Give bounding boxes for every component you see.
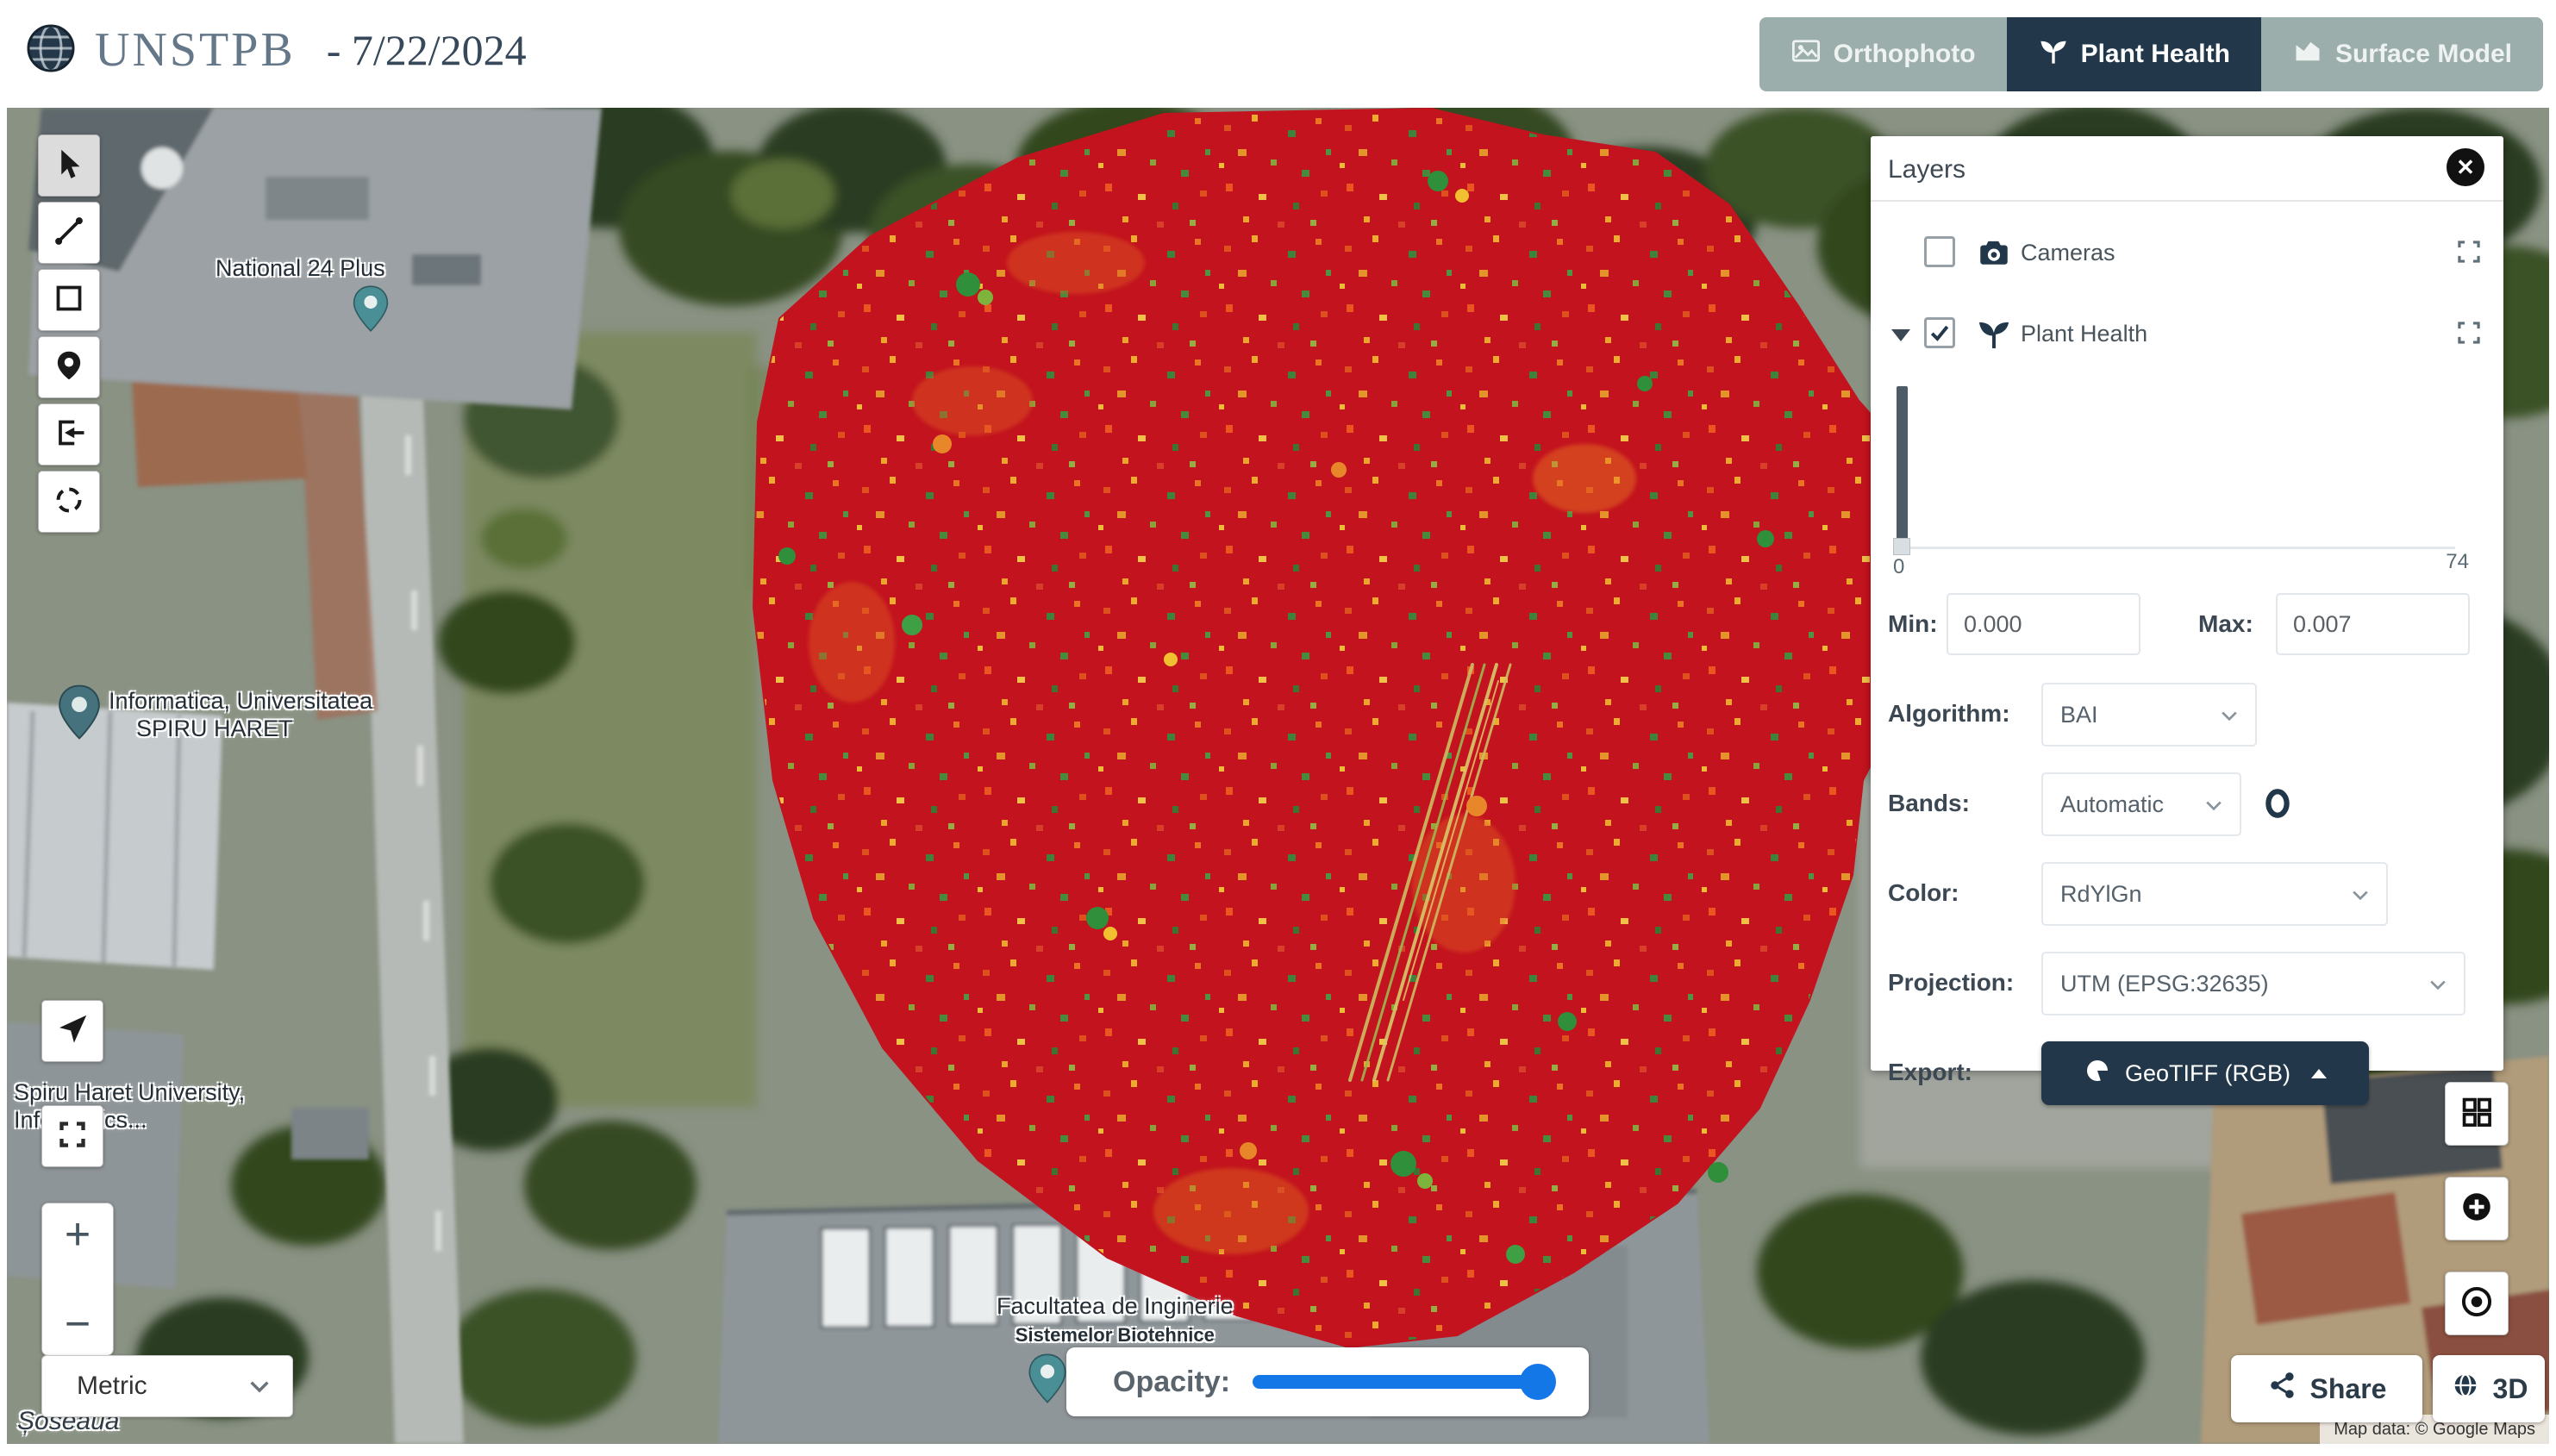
file-export-icon — [52, 416, 86, 454]
zoom-in-button[interactable]: + — [42, 1212, 113, 1257]
plant-health-icon — [2038, 35, 2069, 73]
export-measurements-button[interactable] — [38, 403, 100, 466]
max-label: Max: — [2198, 610, 2253, 638]
locate-me-button[interactable] — [41, 1000, 103, 1062]
projection-value: UTM (EPSG:32635) — [2060, 971, 2269, 997]
chevron-down-icon — [249, 1372, 270, 1401]
polygon-tool-icon — [52, 281, 86, 320]
layer-row-cameras: Cameras — [1871, 226, 2503, 283]
layer-name: Cameras — [2021, 240, 2115, 266]
marker-tool-icon — [52, 348, 86, 387]
layers-panel-header: Layers ✕ — [1871, 136, 2503, 200]
measure-line-tool-button[interactable] — [38, 202, 100, 264]
camera-icon — [1976, 234, 2012, 275]
layer-row-plant-health: Plant Health — [1871, 307, 2503, 364]
header: UNSTPB - 7/22/2024 Orthophoto Plant Heal… — [0, 0, 2556, 108]
divider — [1871, 200, 2503, 202]
location-arrow-icon — [55, 1012, 90, 1051]
algorithm-select[interactable]: BAI — [2041, 683, 2257, 747]
opacity-slider-thumb[interactable] — [1520, 1364, 1556, 1400]
map-pin-icon[interactable] — [352, 284, 390, 337]
layers-panel-title: Layers — [1888, 155, 1965, 184]
project-date: - 7/22/2024 — [327, 25, 527, 75]
bands-label: Bands: — [1888, 790, 1970, 817]
zoom-to-layer-icon[interactable] — [2455, 238, 2483, 270]
place-label-national: National 24 Plus — [216, 254, 385, 282]
image-icon — [1790, 35, 1822, 73]
place-label-facultatea: Facultatea de Inginerie Sistemelor Biote… — [997, 1292, 1234, 1348]
tab-label: Plant Health — [2081, 40, 2230, 69]
select-tool-button[interactable] — [38, 134, 100, 197]
tab-label: Orthophoto — [1834, 40, 1976, 69]
max-input[interactable] — [2276, 593, 2470, 655]
share-icon — [2267, 1370, 2298, 1408]
zoom-out-button[interactable]: − — [42, 1302, 113, 1347]
share-label: Share — [2310, 1373, 2387, 1405]
algorithm-row: Algorithm: BAI — [1871, 683, 2503, 747]
globe-3d-icon — [2450, 1370, 2481, 1408]
opacity-label: Opacity: — [1113, 1365, 1230, 1399]
fullscreen-icon — [55, 1117, 90, 1156]
add-overlay-button[interactable] — [2445, 1177, 2509, 1240]
map-pin-icon[interactable] — [57, 684, 102, 745]
caret-up-icon — [2311, 1069, 2327, 1078]
bands-select[interactable]: Automatic — [2041, 772, 2241, 836]
projection-select[interactable]: UTM (EPSG:32635) — [2041, 952, 2465, 1015]
map-pin-icon[interactable] — [1028, 1353, 1067, 1409]
view-tabbar: Orthophoto Plant Health Surface Model — [1759, 17, 2543, 91]
chevron-down-icon — [2221, 702, 2238, 728]
chevron-down-icon — [2429, 971, 2447, 997]
colormap-select[interactable]: RdYlGn — [2041, 862, 2388, 926]
color-row: Color: RdYlGn — [1871, 862, 2503, 926]
projection-row: Projection: UTM (EPSG:32635) — [1871, 952, 2503, 1015]
plant-health-checkbox[interactable] — [1924, 317, 1955, 348]
algorithm-label: Algorithm: — [1888, 700, 2010, 728]
focus-rings-icon — [2459, 1284, 2495, 1324]
focus-extent-button[interactable] — [2445, 1272, 2509, 1335]
tab-surface-model[interactable]: Surface Model — [2261, 17, 2543, 91]
opacity-slider[interactable] — [1253, 1375, 1549, 1389]
plant-health-icon — [1976, 316, 2012, 356]
min-input[interactable] — [1947, 593, 2140, 655]
cursor-icon — [52, 147, 86, 185]
chevron-down-icon — [2205, 791, 2222, 818]
bands-value: Automatic — [2060, 791, 2164, 818]
histogram-range-handle[interactable] — [1893, 538, 1910, 555]
zoom-to-layer-icon[interactable] — [2455, 319, 2483, 351]
place-label-informatica: Informatica, Universitatea SPIRU HARET — [109, 687, 372, 743]
webodm-app: UNSTPB - 7/22/2024 Orthophoto Plant Heal… — [0, 0, 2556, 1456]
fullscreen-button[interactable] — [41, 1105, 103, 1167]
globe-icon — [26, 23, 76, 78]
chevron-down-icon — [2352, 881, 2369, 908]
export-row: Export: GeoTIFF (RGB) — [1871, 1041, 2503, 1105]
info-icon[interactable] — [2260, 786, 2295, 825]
minmax-row: Min: Max: — [1871, 593, 2503, 657]
histogram-max-label: 74 — [2446, 550, 2469, 574]
globe-export-icon — [2084, 1057, 2111, 1090]
project-title: UNSTPB — [95, 22, 296, 78]
cameras-checkbox[interactable] — [1924, 236, 1955, 267]
export-label: Export: — [1888, 1059, 1972, 1086]
histogram-range-track — [1897, 547, 2455, 549]
layers-panel: Layers ✕ Cameras Plant Health — [1871, 136, 2503, 1071]
export-button-label: GeoTIFF (RGB) — [2125, 1060, 2290, 1087]
layer-name: Plant Health — [2021, 321, 2147, 347]
tab-orthophoto[interactable]: Orthophoto — [1759, 17, 2007, 91]
export-geotiff-button[interactable]: GeoTIFF (RGB) — [2041, 1041, 2369, 1105]
brand: UNSTPB - 7/22/2024 — [26, 22, 527, 78]
crosshair-tool-button[interactable] — [38, 471, 100, 533]
collapse-caret-icon[interactable] — [1891, 329, 1910, 341]
min-label: Min: — [1888, 610, 1938, 638]
view-3d-button[interactable]: 3D — [2433, 1355, 2545, 1422]
tab-plant-health[interactable]: Plant Health — [2007, 17, 2261, 91]
line-tool-icon — [52, 214, 86, 253]
algorithm-value: BAI — [2060, 702, 2098, 728]
colormap-value: RdYlGn — [2060, 881, 2142, 908]
bands-row: Bands: Automatic — [1871, 772, 2503, 836]
zoom-control: + − — [41, 1203, 114, 1356]
projection-label: Projection: — [1888, 969, 2014, 997]
polygon-tool-button[interactable] — [38, 269, 100, 331]
share-button[interactable]: Share — [2231, 1355, 2422, 1422]
color-label: Color: — [1888, 879, 1959, 907]
histogram: 0 74 — [1871, 386, 2503, 567]
crosshair-icon — [52, 483, 86, 522]
plus-circle-icon — [2459, 1189, 2495, 1229]
marker-tool-button[interactable] — [38, 336, 100, 398]
units-select[interactable]: Metric — [41, 1355, 293, 1417]
units-value: Metric — [77, 1372, 147, 1401]
histogram-min-label: 0 — [1893, 555, 1904, 579]
histogram-spike — [1897, 386, 1908, 541]
tab-label: Surface Model — [2335, 40, 2512, 69]
threed-label: 3D — [2493, 1373, 2528, 1405]
opacity-control: Opacity: — [1066, 1347, 1589, 1416]
close-icon[interactable]: ✕ — [2447, 148, 2484, 186]
area-chart-icon — [2292, 35, 2323, 73]
